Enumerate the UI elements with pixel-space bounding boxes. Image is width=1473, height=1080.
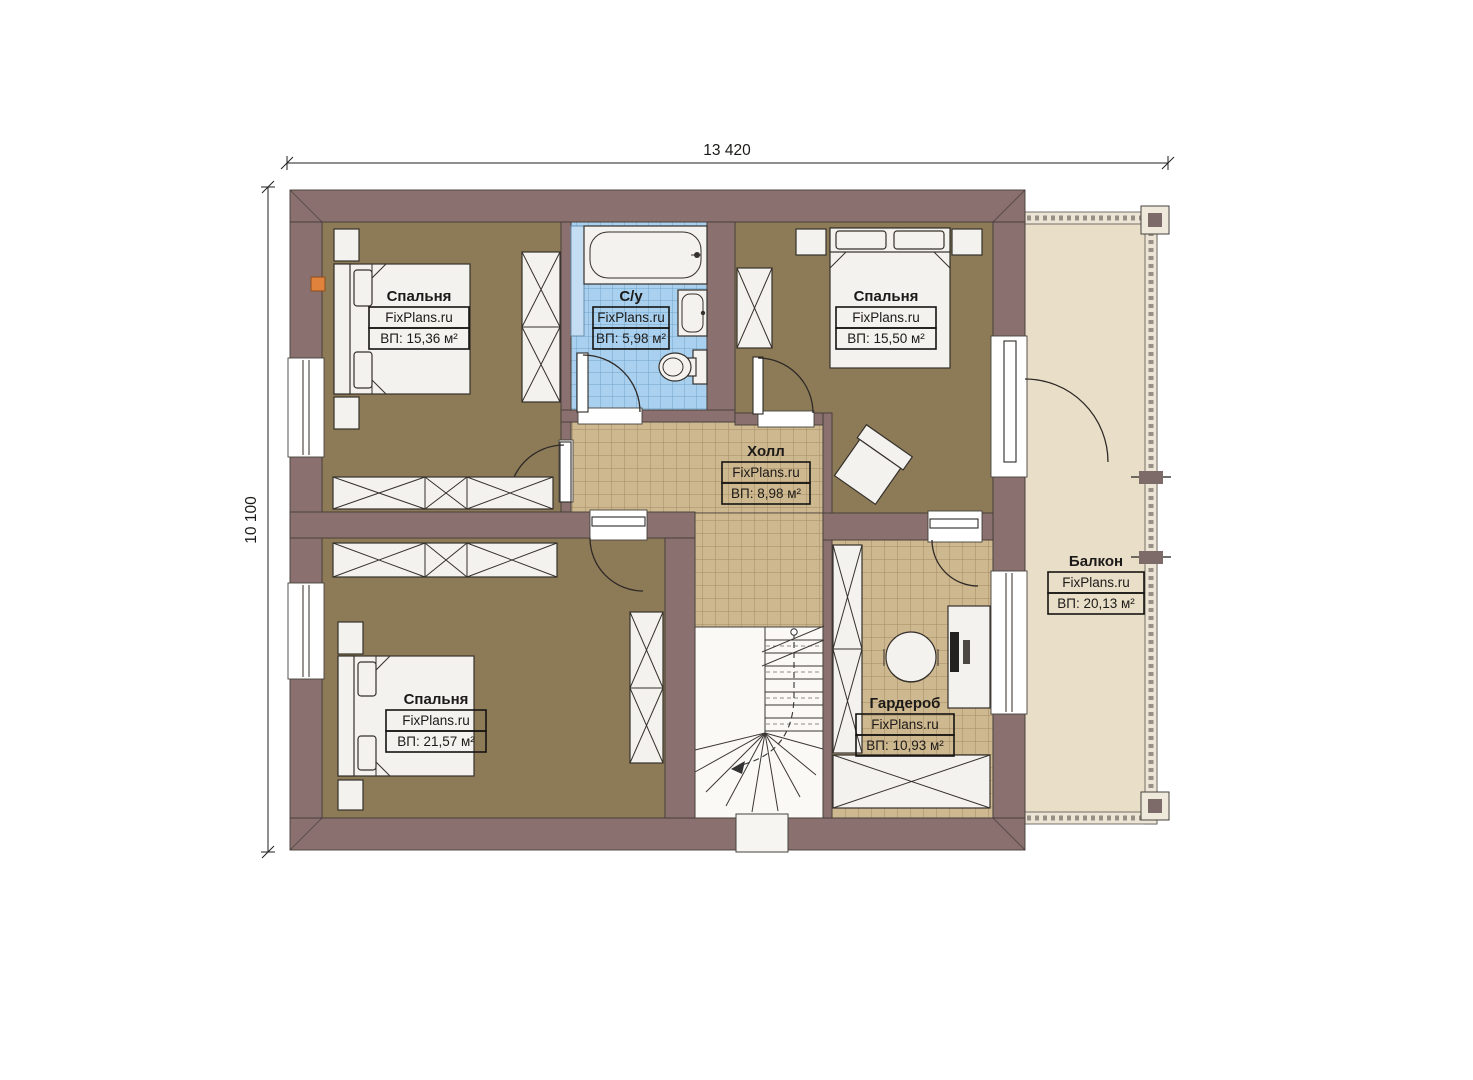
window-left-bottom — [288, 583, 324, 679]
wardrobe-dresser — [833, 755, 990, 808]
floor-plan-page: Спальня FixPlans.ru ВП: 15,36 м² С/у Fix… — [0, 0, 1473, 1080]
room-brand: FixPlans.ru — [732, 465, 800, 480]
window-right-wardrobe — [991, 571, 1027, 714]
room-brand: FixPlans.ru — [597, 310, 665, 325]
dimension-width-label: 13 420 — [703, 142, 751, 159]
room-brand: FixPlans.ru — [852, 310, 920, 325]
floor-plan-svg: Спальня FixPlans.ru ВП: 15,36 м² С/у Fix… — [0, 0, 1473, 1080]
sink — [678, 290, 707, 336]
wardrobe-cabinet-top-right — [737, 268, 772, 348]
balcony-area — [1025, 206, 1171, 824]
room-name: Гардероб — [870, 695, 941, 712]
floor-hall-lower — [695, 513, 823, 627]
room-area: ВП: 10,93 м² — [866, 738, 944, 753]
shower-glass — [571, 226, 584, 336]
desk — [948, 606, 990, 708]
toilet — [659, 350, 707, 384]
dimension-height-label: 10 100 — [243, 496, 260, 544]
window-left-top — [288, 358, 324, 457]
room-brand: FixPlans.ru — [1062, 575, 1130, 590]
room-name: Спальня — [404, 691, 469, 708]
wardrobe-cabinet-top-left — [522, 252, 560, 402]
wall-marker-icon — [311, 277, 325, 291]
room-name: Спальня — [387, 288, 452, 305]
railing-corner-post-top — [1141, 206, 1169, 234]
room-name: Спальня — [854, 288, 919, 305]
wardrobe-tall-cabinet — [833, 545, 862, 753]
bathtub — [584, 226, 707, 284]
room-area: ВП: 8,98 м² — [731, 486, 802, 501]
monitor-icon — [950, 632, 959, 672]
room-name: Холл — [747, 443, 785, 460]
chimney-block — [736, 814, 788, 852]
dresser-top-left — [333, 477, 553, 509]
room-name: Балкон — [1069, 553, 1123, 570]
room-brand: FixPlans.ru — [385, 310, 453, 325]
dresser-bottom-left-top — [333, 543, 557, 577]
room-area: ВП: 15,36 м² — [380, 331, 458, 346]
room-brand: FixPlans.ru — [402, 713, 470, 728]
room-area: ВП: 21,57 м² — [397, 734, 475, 749]
room-area: ВП: 15,50 м² — [847, 331, 925, 346]
wardrobe-cabinet-bottom-left — [630, 612, 663, 763]
room-brand: FixPlans.ru — [871, 717, 939, 732]
room-name: С/у — [619, 288, 643, 305]
railing-corner-post-bottom — [1141, 792, 1169, 820]
keyboard-icon — [963, 640, 970, 664]
floor-stairwell — [695, 627, 823, 818]
room-area: ВП: 20,13 м² — [1057, 596, 1135, 611]
room-area: ВП: 5,98 м² — [596, 331, 667, 346]
